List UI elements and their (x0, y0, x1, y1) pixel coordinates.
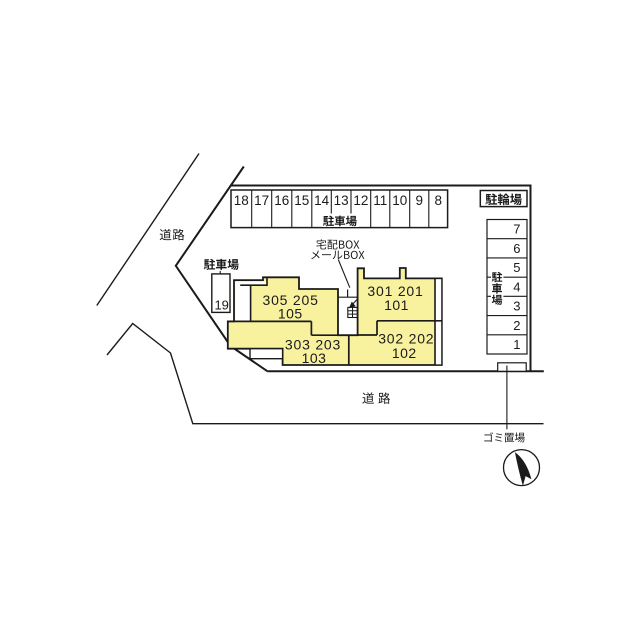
svg-text:8: 8 (434, 193, 442, 208)
svg-text:17: 17 (254, 193, 269, 208)
svg-text:1: 1 (513, 337, 520, 352)
svg-text:3: 3 (513, 299, 520, 314)
svg-text:2: 2 (513, 318, 520, 333)
svg-text:6: 6 (513, 241, 520, 256)
svg-text:18: 18 (234, 193, 249, 208)
svg-text:7: 7 (513, 222, 520, 237)
svg-text:11: 11 (373, 193, 387, 208)
svg-text:4: 4 (513, 279, 520, 294)
svg-text:103: 103 (302, 350, 327, 366)
svg-text:101: 101 (384, 297, 409, 313)
svg-text:102: 102 (392, 345, 417, 361)
svg-text:105: 105 (278, 305, 303, 321)
svg-text:15: 15 (294, 193, 309, 208)
svg-text:16: 16 (274, 193, 289, 208)
svg-text:10: 10 (392, 193, 407, 208)
svg-text:9: 9 (415, 193, 423, 208)
svg-text:5: 5 (513, 260, 520, 275)
svg-text:19: 19 (214, 297, 228, 312)
svg-text:12: 12 (353, 193, 368, 208)
svg-text:13: 13 (334, 193, 349, 208)
svg-text:14: 14 (314, 193, 330, 208)
